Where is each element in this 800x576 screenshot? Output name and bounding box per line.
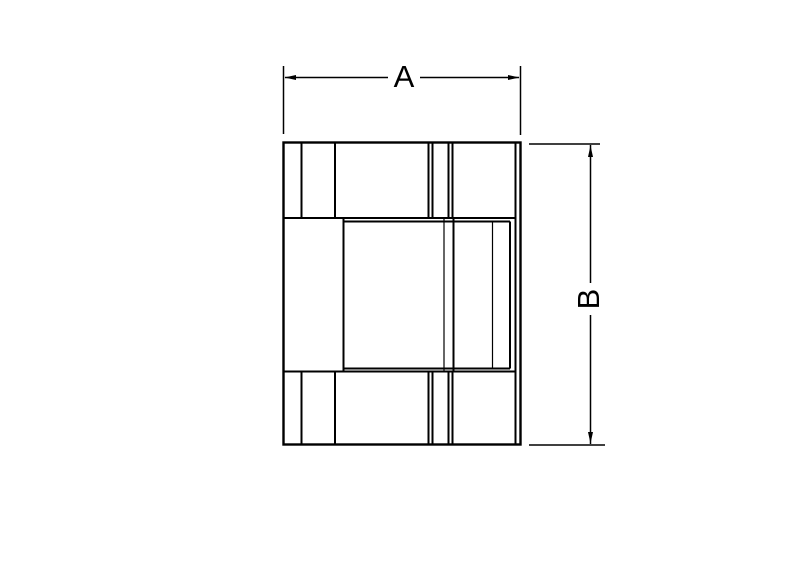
- dim-b-arrow-down-icon: [588, 432, 593, 444]
- part-view: [284, 143, 521, 445]
- part-outline: [284, 143, 521, 445]
- dim-a-label: A: [388, 61, 420, 93]
- dim-a-arrow-left-icon: [285, 75, 297, 80]
- dim-b-label: B: [573, 283, 605, 315]
- dim-b-arrow-up-icon: [588, 146, 593, 158]
- drawing-canvas: A B: [0, 0, 800, 576]
- dim-a-arrow-right-icon: [508, 75, 520, 80]
